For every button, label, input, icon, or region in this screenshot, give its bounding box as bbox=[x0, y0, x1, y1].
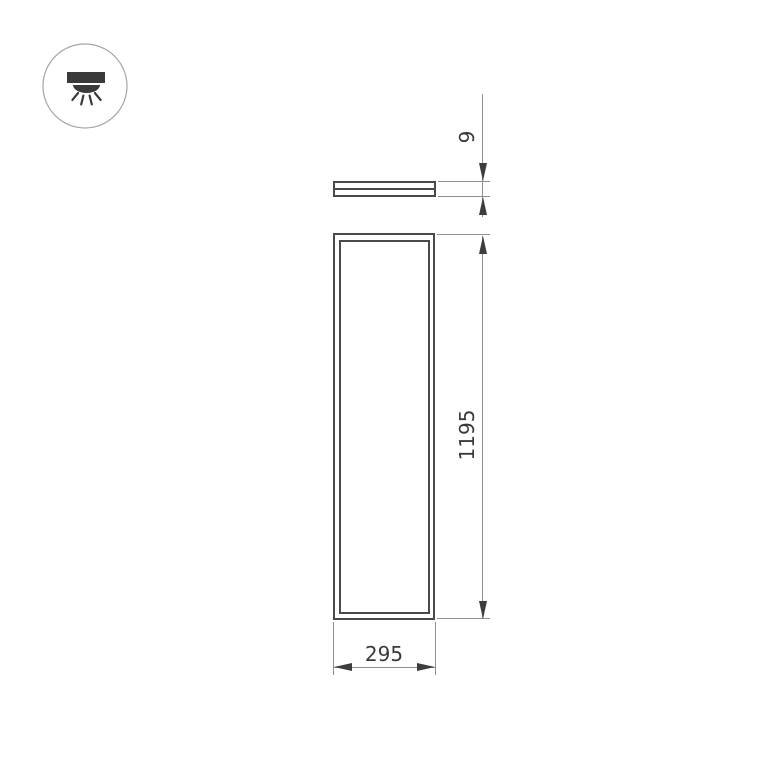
width-dimension-label: 295 bbox=[349, 644, 419, 664]
thickness-arrow-bottom bbox=[479, 197, 487, 215]
thickness-arrow-top bbox=[479, 163, 487, 181]
height-arrow-bottom bbox=[479, 601, 487, 619]
height-extension-line-top bbox=[437, 234, 490, 235]
dimension-drawing: 9 1195 295 bbox=[0, 0, 767, 767]
light-rays bbox=[72, 93, 100, 104]
thickness-dimension-label: 9 bbox=[457, 117, 477, 157]
ceiling-downlight-icon bbox=[42, 43, 128, 129]
lamp-housing bbox=[67, 72, 105, 83]
width-arrow-right bbox=[417, 663, 435, 671]
side-view-panel-midline bbox=[335, 188, 434, 190]
height-arrow-top bbox=[479, 236, 487, 254]
width-arrow-left bbox=[334, 663, 352, 671]
height-dimension-label: 1195 bbox=[457, 400, 477, 470]
lamp-dome bbox=[73, 85, 100, 93]
height-dimension-line bbox=[482, 236, 483, 619]
front-view-inner-frame bbox=[339, 240, 430, 614]
